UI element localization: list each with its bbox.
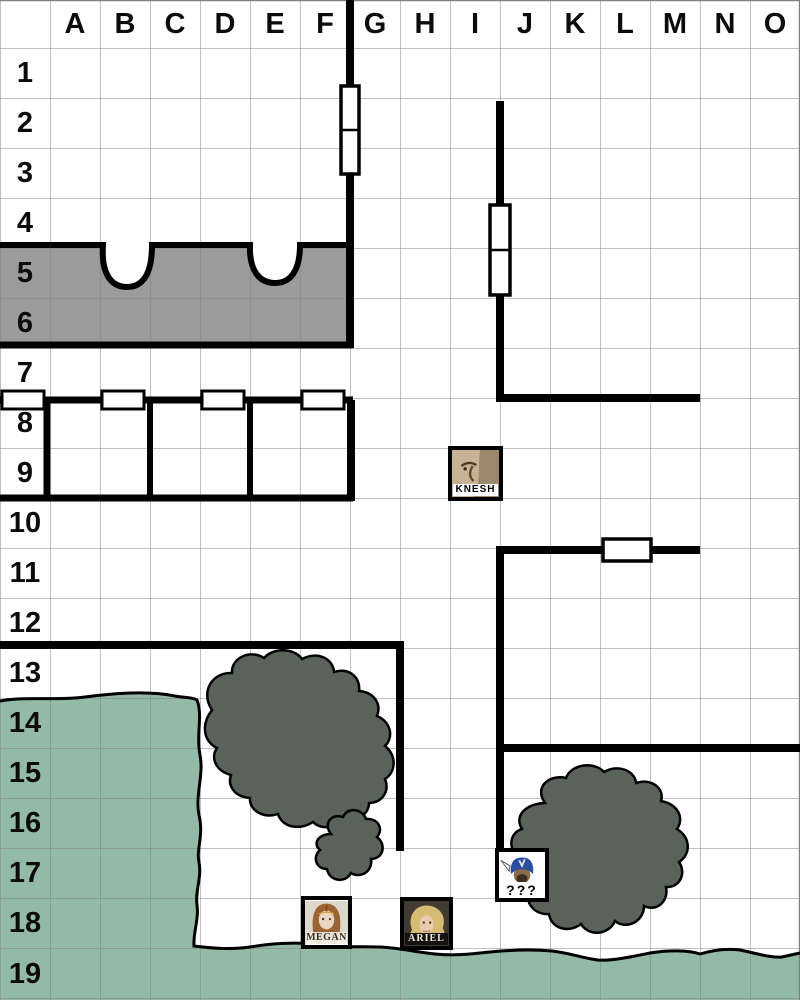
row-header: 17: [0, 848, 50, 898]
row-header: 10: [0, 498, 50, 548]
column-header: K: [550, 0, 600, 48]
token-unknown[interactable]: ???: [495, 848, 549, 902]
map-canvas: [0, 0, 800, 1000]
column-header: M: [650, 0, 700, 48]
column-header: N: [700, 0, 750, 48]
column-header: O: [750, 0, 800, 48]
token-ariel[interactable]: ARIEL: [400, 897, 453, 950]
column-header: A: [50, 0, 100, 48]
row-header: 19: [0, 948, 50, 1000]
battle-map: A B C D E F G H I J K L M N O 1 2 3 4 5 …: [0, 0, 800, 1000]
row-header: 9: [0, 448, 50, 498]
row-header: 14: [0, 698, 50, 748]
row-header: 4: [0, 198, 50, 248]
column-header: D: [200, 0, 250, 48]
row-header: 15: [0, 748, 50, 798]
token-unknown-label: ???: [500, 882, 544, 897]
column-header: B: [100, 0, 150, 48]
row-header: 7: [0, 348, 50, 398]
column-header: H: [400, 0, 450, 48]
door-l-10[interactable]: [603, 539, 651, 561]
row-header: 13: [0, 648, 50, 698]
column-header: E: [250, 0, 300, 48]
token-megan[interactable]: MEGAN: [301, 896, 352, 949]
door-cell-d[interactable]: [202, 391, 244, 409]
row-header: 11: [0, 548, 50, 598]
token-knesh-label: KNESH: [453, 484, 498, 496]
column-headers: A B C D E F G H I J K L M N O: [50, 0, 800, 48]
row-header: 3: [0, 148, 50, 198]
row-header: 5: [0, 248, 50, 298]
door-cell-f[interactable]: [302, 391, 344, 409]
door-cell-b[interactable]: [102, 391, 144, 409]
row-header: 1: [0, 48, 50, 98]
token-ariel-label: ARIEL: [405, 933, 448, 945]
column-header: G: [350, 0, 400, 48]
row-header: 2: [0, 98, 50, 148]
column-header: C: [150, 0, 200, 48]
column-header: F: [300, 0, 350, 48]
column-header: J: [500, 0, 550, 48]
row-header: 8: [0, 398, 50, 448]
row-header: 16: [0, 798, 50, 848]
row-header: 6: [0, 298, 50, 348]
row-header: 18: [0, 898, 50, 948]
token-megan-label: MEGAN: [306, 932, 347, 944]
row-header: 12: [0, 598, 50, 648]
column-header: L: [600, 0, 650, 48]
token-knesh[interactable]: KNESH: [448, 446, 503, 501]
column-header: I: [450, 0, 500, 48]
